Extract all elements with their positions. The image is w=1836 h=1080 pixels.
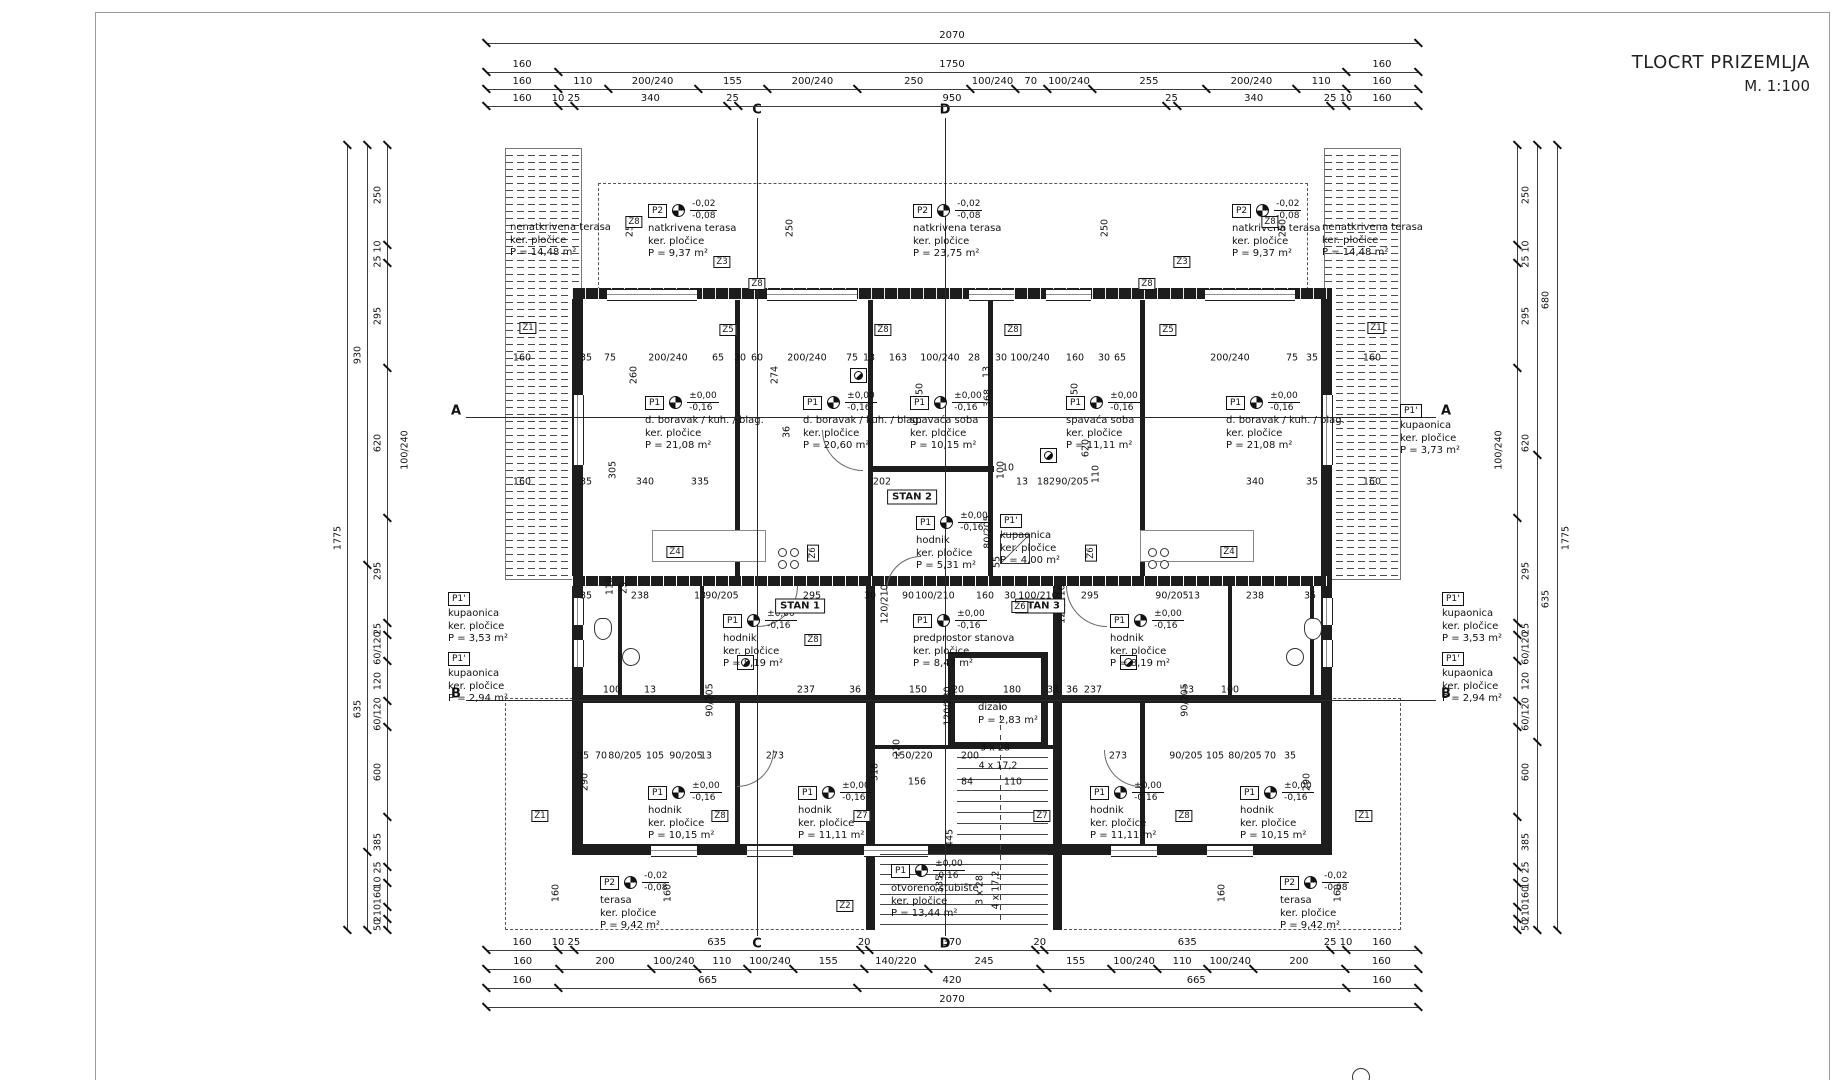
finish-tag: P1 xyxy=(1090,786,1109,800)
window-tag: Z8 xyxy=(711,810,728,822)
dimension-label: 180 xyxy=(1003,685,1021,696)
dimension-label: 65 xyxy=(1114,353,1126,364)
finish-tag: P1 xyxy=(891,864,910,878)
level-marker-icon xyxy=(1090,396,1103,409)
room-label: P1±0,00-0,16predprostor stanovaker. ploč… xyxy=(913,610,1014,671)
finish-tag: P1 xyxy=(913,614,932,628)
level-marker-icon xyxy=(1134,614,1147,627)
window xyxy=(864,845,928,857)
dimension-label: 105 xyxy=(646,751,664,762)
dimension-label: 65 xyxy=(712,353,724,364)
dimension-label: 200/240 xyxy=(792,76,834,87)
dimension-line xyxy=(486,106,1418,107)
dimension-label: 665 xyxy=(1187,975,1206,986)
dimension-label: 120/230 xyxy=(943,686,954,725)
room-text-line: ker. pločice xyxy=(510,235,611,248)
dimension-label: 13 xyxy=(700,751,712,762)
room-label: P1±0,00-0,16hodnikker. pločiceP = 11,11 … xyxy=(1090,782,1164,843)
dimension-label: 3 x 28 xyxy=(980,743,1010,754)
level-values: ±0,00-0,16 xyxy=(690,782,722,803)
room-tag-row: P1' xyxy=(448,592,508,606)
dimension-label: 250 xyxy=(373,186,384,204)
room-text-line: kupaonica xyxy=(448,608,508,621)
room-text-line: P = 20,60 m² xyxy=(803,440,922,453)
room-tag-row: P1' xyxy=(1400,404,1460,418)
dimension-label: 13 xyxy=(982,366,993,378)
dimension-label: 295 xyxy=(1521,561,1532,579)
stair-tread xyxy=(880,924,1048,925)
wall xyxy=(1228,584,1232,699)
window xyxy=(651,845,697,857)
dimension-label: 35 xyxy=(580,477,592,488)
window-tag: Z8 xyxy=(625,216,642,228)
window-tag: Z6 xyxy=(807,544,819,561)
dimension-label: 100/240 xyxy=(400,430,411,469)
finish-tag: P2 xyxy=(913,204,932,218)
dimension-label: 13 xyxy=(863,353,875,364)
dimension-label: 90 xyxy=(902,591,914,602)
room-text-line: spavaća soba xyxy=(1066,415,1140,428)
electrical-symbol xyxy=(850,368,867,383)
dimension-label: 160 xyxy=(1363,353,1381,364)
finish-tag: P2 xyxy=(1232,204,1251,218)
room-tag-row: P1' xyxy=(448,652,508,666)
room-tag-row: P1±0,00-0,16 xyxy=(645,392,764,413)
window-tag: Z8 xyxy=(1138,278,1155,290)
wall-tiled xyxy=(572,576,1332,586)
dimension-label: 90/205 xyxy=(1055,477,1088,488)
dimension-label: 182 xyxy=(1037,477,1055,488)
dimension-label: 160 xyxy=(512,59,531,70)
room-text-line: P = 14,48 m² xyxy=(1322,247,1423,260)
dimension-label: 295 xyxy=(373,306,384,324)
room-label: P2-0,02-0,08natkrivena terasaker. pločic… xyxy=(1232,200,1320,261)
dimension-label: 120 xyxy=(373,672,384,690)
window-tag: Z5 xyxy=(1159,324,1176,336)
dimension-line xyxy=(486,72,1418,73)
room-text-line: hodnik xyxy=(1110,633,1184,646)
room-label: nenatkrivena terasaker. pločiceP = 14,48… xyxy=(1322,222,1423,260)
dimension-label: 160 xyxy=(1372,59,1391,70)
dimension-label: 274 xyxy=(770,366,781,384)
dimension-label: 70 xyxy=(1264,751,1276,762)
dimension-label: 200 xyxy=(596,956,615,967)
room-tag-row: P2-0,02-0,08 xyxy=(1280,872,1349,893)
level-values: ±0,00-0,16 xyxy=(687,392,719,413)
window-tag: Z1 xyxy=(1355,810,1372,822)
room-text-line: kupaonica xyxy=(1442,608,1502,621)
dimension-line xyxy=(486,43,1418,44)
burner xyxy=(1148,560,1157,569)
dimension-label: 2070 xyxy=(939,30,964,41)
dimension-label: 90/205 xyxy=(705,591,738,602)
dimension-label: 370 xyxy=(942,937,961,948)
room-tag-row: P2-0,02-0,08 xyxy=(913,200,1001,221)
dimension-label: 160 xyxy=(1217,884,1228,902)
window xyxy=(573,598,584,625)
room-tag-row: P1±0,00-0,16 xyxy=(910,392,984,413)
dimension-label: 10 25 xyxy=(552,93,581,104)
dimension-label: 635 xyxy=(353,699,364,717)
dimension-label: 4 x 17,2 xyxy=(991,871,1002,910)
dimension-label: 110 xyxy=(1312,76,1331,87)
dimension-label: 160 xyxy=(976,591,994,602)
dimension-label: 200/240 xyxy=(632,76,674,87)
level-marker-icon xyxy=(624,876,637,889)
room-text-line: nenatkrivena terasa xyxy=(1322,222,1423,235)
stair-tread xyxy=(957,801,1048,802)
dimension-label: 160 xyxy=(1372,975,1391,986)
room-label: P2-0,02-0,08natkrivena terasaker. pločic… xyxy=(913,200,1001,261)
room-label: P1'kupaonicaker. pločiceP = 2,94 m² xyxy=(1442,652,1502,706)
dimension-label: 35 xyxy=(580,591,592,602)
level-values: ±0,00-0,16 xyxy=(840,782,872,803)
room-text-line: P = 11,11 m² xyxy=(1066,440,1140,453)
dimension-label: 13 xyxy=(1016,477,1028,488)
room-text-line: predprostor stanova xyxy=(913,633,1014,646)
dimension-label: 160 xyxy=(1372,93,1391,104)
wc xyxy=(594,618,612,640)
dimension-label: 50 xyxy=(373,918,384,930)
room-text-line: ker. pločice xyxy=(448,681,508,694)
finish-tag: P2 xyxy=(600,876,619,890)
hatch-terrace xyxy=(505,148,582,580)
dimension-label: 33 xyxy=(1047,685,1059,696)
room-text-line: P = 5,31 m² xyxy=(916,560,990,573)
room-text-line: P = 8,19 m² xyxy=(723,658,797,671)
window-tag: Z3 xyxy=(713,256,730,268)
floor-plan-sheet: TLOCRT PRIZEMLJA M. 1:100 AABBCCDD207016… xyxy=(0,0,1836,1080)
window xyxy=(1207,845,1253,857)
window-tag: Z8 xyxy=(874,324,891,336)
room-tag-row: P1±0,00-0,16 xyxy=(1226,392,1345,413)
dimension-label: 200/240 xyxy=(1231,76,1273,87)
room-text-line: P = 11,11 m² xyxy=(798,830,872,843)
dimension-label: 75 xyxy=(1286,353,1298,364)
room-tag-row: P1' xyxy=(1442,592,1502,606)
dimension-label: 100/240 xyxy=(653,956,695,967)
dimension-label: 100/240 xyxy=(749,956,791,967)
apartment-tag: STAN 1 xyxy=(775,599,825,614)
dimension-label: 100/240 xyxy=(1209,956,1251,967)
room-label: P2-0,02-0,08natkrivena terasaker. pločic… xyxy=(648,200,736,261)
room-text-line: ker. pločice xyxy=(1232,236,1320,249)
level-marker-icon xyxy=(1250,396,1263,409)
dimension-line xyxy=(347,145,348,930)
dimension-label: 35 xyxy=(1304,591,1316,602)
dimension-label: 70 xyxy=(595,751,607,762)
finish-tag: P1 xyxy=(1110,614,1129,628)
dimension-label: 635 xyxy=(707,937,726,948)
dimension-label: 160 xyxy=(551,884,562,902)
dimension-label: 2070 xyxy=(939,994,964,1005)
room-text-line: hodnik xyxy=(1240,805,1314,818)
room-label: P1'kupaonicaker. pločiceP = 3,53 m² xyxy=(1442,592,1502,646)
room-text-line: ker. pločice xyxy=(1090,818,1164,831)
room-text-line: ker. pločice xyxy=(916,548,990,561)
dimension-label: 635 xyxy=(1178,937,1197,948)
room-text-line: P = 3,73 m² xyxy=(1400,445,1460,458)
dimension-label: 100/240 xyxy=(920,353,959,364)
room-tag-row: P1±0,00-0,16 xyxy=(798,782,872,803)
room-tag-row: P2-0,02-0,08 xyxy=(600,872,669,893)
dimension-label: 30 xyxy=(734,353,746,364)
room-label: P1±0,00-0,16hodnikker. pločiceP = 8,19 m… xyxy=(723,610,797,671)
room-label: P1'kupaonicaker. pločiceP = 3,73 m² xyxy=(1400,404,1460,458)
room-text-line: d. boravak / kuh. / blag. xyxy=(645,415,764,428)
dimension-label: 318 xyxy=(870,763,881,781)
room-text-line: ker. pločice xyxy=(1442,681,1502,694)
window-tag: Z6 xyxy=(1011,601,1028,613)
room-tag-row: P1±0,00-0,16 xyxy=(913,610,1014,631)
room-text-line: P = 10,15 m² xyxy=(648,830,722,843)
wall xyxy=(572,288,583,855)
stair-tread xyxy=(957,834,1048,835)
level-marker-icon xyxy=(1304,876,1317,889)
dimension-label: 80/205 xyxy=(608,751,641,762)
window-tag: Z6 xyxy=(1085,544,1097,561)
room-text-line: P = 21,08 m² xyxy=(1226,440,1345,453)
room-text-line: kupaonica xyxy=(1400,420,1460,433)
dimension-label: 120/210 xyxy=(880,584,891,623)
finish-tag: P1' xyxy=(448,652,470,666)
dimension-label: 90/205 xyxy=(1169,751,1202,762)
dimension-label: 445 xyxy=(945,829,956,847)
window xyxy=(573,395,584,465)
dimension-label: 155 xyxy=(1066,956,1085,967)
wc xyxy=(1304,618,1322,640)
dimension-label: 160 xyxy=(1372,76,1391,87)
window xyxy=(1322,598,1333,625)
burner xyxy=(1160,560,1169,569)
dimension-label: 100/240 xyxy=(1010,353,1049,364)
dimension-label: 160 xyxy=(512,937,531,948)
finish-tag: P1 xyxy=(916,516,935,530)
dimension-label: 200/240 xyxy=(787,353,826,364)
dimension-label: 100/240 xyxy=(1494,430,1505,469)
dimension-label: 295 xyxy=(1081,591,1099,602)
dimension-label: 160 xyxy=(513,353,531,364)
room-text-line: ker. pločice xyxy=(723,646,797,659)
dimension-label: 90/205 xyxy=(669,751,702,762)
burner xyxy=(778,548,787,557)
dimension-label: 60/120 xyxy=(1521,631,1532,664)
room-label: P1±0,00-0,16spavaća sobaker. pločiceP = … xyxy=(1066,392,1140,453)
dimension-label: 28 xyxy=(968,353,980,364)
window-tag: Z8 xyxy=(1175,810,1192,822)
window xyxy=(607,289,697,301)
dimension-label: 160 xyxy=(1363,477,1381,488)
room-text-line: ker. pločice xyxy=(803,428,922,441)
room-tag-row: P1±0,00-0,16 xyxy=(891,860,979,881)
window-tag: Z8 xyxy=(1261,216,1278,228)
level-marker-icon xyxy=(940,516,953,529)
dimension-label: 163 xyxy=(889,353,907,364)
dimension-line xyxy=(486,969,1418,970)
room-text-line: spavaća soba xyxy=(910,415,984,428)
hatch-terrace xyxy=(1324,148,1401,580)
dimension-label: 150/220 xyxy=(893,751,932,762)
room-tag-row: P1' xyxy=(1000,514,1060,528)
dimension-label: 420 xyxy=(942,975,961,986)
dimension-label: 295 xyxy=(373,561,384,579)
dimension-label: 90/205 xyxy=(1180,683,1191,716)
room-text-line: P = 4,00 m² xyxy=(1000,555,1060,568)
dimension-label: 60/120 xyxy=(1521,697,1532,730)
room-label: P1±0,00-0,16d. boravak / kuh. / blag.ker… xyxy=(645,392,764,453)
window-tag: Z4 xyxy=(1220,546,1237,558)
dimension-label: 120 xyxy=(1521,672,1532,690)
room-text-line: P = 9,37 m² xyxy=(1232,248,1320,261)
dimension-label: 36 xyxy=(782,426,793,438)
dimension-line xyxy=(486,988,1418,989)
window-tag: Z1 xyxy=(531,810,548,822)
dimension-label: 620 xyxy=(373,434,384,452)
room-text-line: P = 11,11 m² xyxy=(1090,830,1164,843)
dimension-label: 84 xyxy=(961,777,973,788)
dimension-label: 60/120 xyxy=(373,697,384,730)
level-values: ±0,00-0,16 xyxy=(958,512,990,533)
room-label: P1±0,00-0,16otvoreno stubišteker. pločic… xyxy=(891,860,979,921)
dimension-label: 10 25 xyxy=(373,861,384,888)
dimension-label: 110 xyxy=(573,76,592,87)
dimension-label: 90/205 xyxy=(705,683,716,716)
dimension-label: 368 xyxy=(983,389,994,407)
window-tag: Z7 xyxy=(853,810,870,822)
dimension-label: 160 xyxy=(1521,886,1532,904)
dimension-label: 13 xyxy=(1188,591,1200,602)
level-values: ±0,00-0,16 xyxy=(1282,782,1314,803)
dimension-label: 160 xyxy=(512,975,531,986)
dimension-label: 100 xyxy=(1221,685,1239,696)
level-marker-icon xyxy=(822,786,835,799)
dimension-label: 930 xyxy=(353,346,364,364)
dimension-label: 160 xyxy=(1372,937,1391,948)
dimension-label: 13 xyxy=(644,685,656,696)
wall xyxy=(866,584,875,930)
finish-tag: P1 xyxy=(910,396,929,410)
room-text-line: ker. pločice xyxy=(1442,621,1502,634)
dimension-label: 160 xyxy=(1372,956,1391,967)
room-text-line: P = 8,47 m² xyxy=(913,658,1014,671)
dimension-label: 335 xyxy=(691,477,709,488)
dimension-label: 160 xyxy=(1066,353,1084,364)
level-marker-icon xyxy=(672,786,685,799)
dimension-label: 140/220 xyxy=(875,956,917,967)
window xyxy=(573,640,584,667)
room-label: P1±0,00-0,16d. boravak / kuh. / blag.ker… xyxy=(803,392,922,453)
finish-tag: P1 xyxy=(1240,786,1259,800)
dimension-label: 100 xyxy=(603,685,621,696)
room-text-line: terasa xyxy=(1280,895,1349,908)
finish-tag: P1 xyxy=(1066,396,1085,410)
room-text-line: P = 3,53 m² xyxy=(448,633,508,646)
dimension-label: 202 xyxy=(873,477,891,488)
dimension-label: 635 xyxy=(1541,589,1552,607)
room-label: P1'kupaonicaker. pločiceP = 4,00 m² xyxy=(1000,514,1060,568)
dimension-label: 35 xyxy=(580,353,592,364)
dimension-label: 250 xyxy=(904,76,923,87)
room-text-line: ker. pločice xyxy=(913,236,1001,249)
room-text-line: ker. pločice xyxy=(1280,908,1349,921)
dimension-label: 200 xyxy=(1289,956,1308,967)
finish-tag: P2 xyxy=(1280,876,1299,890)
dimension-line xyxy=(367,145,368,930)
dimension-label: 50 xyxy=(1521,918,1532,930)
finish-tag: P1' xyxy=(1442,592,1464,606)
dimension-label: 620 xyxy=(1521,434,1532,452)
dimension-label: 385 xyxy=(373,833,384,851)
dimension-line xyxy=(486,1007,1418,1008)
room-text-line: P = 9,42 m² xyxy=(600,920,669,933)
room-label: P1±0,00-0,16hodnikker. pločiceP = 10,15 … xyxy=(1240,782,1314,843)
burner xyxy=(778,560,787,569)
room-label: dizaloP = 2,83 m² xyxy=(978,702,1038,727)
wall xyxy=(868,466,994,472)
dimension-label: 160 xyxy=(373,886,384,904)
level-marker-icon xyxy=(934,396,947,409)
dimension-label: 90/205 xyxy=(1155,591,1188,602)
dimension-label: 273 xyxy=(1109,751,1127,762)
burner xyxy=(1148,548,1157,557)
level-values: -0,02-0,08 xyxy=(642,872,669,893)
dimension-line xyxy=(486,89,1418,90)
dimension-line xyxy=(1557,145,1558,930)
dimension-label: 237 xyxy=(797,685,815,696)
room-tag-row: P2-0,02-0,08 xyxy=(648,200,736,221)
stair-tread xyxy=(957,790,1048,791)
window-tag: Z3 xyxy=(1173,256,1190,268)
dimension-label: 160 xyxy=(512,76,531,87)
section-line-c xyxy=(757,118,758,936)
dimension-label: 20 xyxy=(952,685,964,696)
apartment-tag: STAN 2 xyxy=(887,490,937,505)
room-label: P1'kupaonicaker. pločiceP = 2,94 m² xyxy=(448,652,508,706)
window xyxy=(1322,640,1333,667)
level-marker-icon xyxy=(672,204,685,217)
dimension-label: 200/240 xyxy=(648,353,687,364)
dimension-label: 4 x 17,2 xyxy=(979,761,1018,772)
burner xyxy=(790,548,799,557)
plan-canvas: AABBCCDD20701601750160160110200/24015520… xyxy=(0,0,1836,1080)
dimension-label: 36 xyxy=(849,685,861,696)
dimension-label: 35 xyxy=(1306,477,1318,488)
window-tag: Z8 xyxy=(1004,324,1021,336)
dimension-label: 75 xyxy=(604,353,616,364)
window-tag: Z5 xyxy=(719,324,736,336)
dimension-label: 100/210 xyxy=(915,591,954,602)
dimension-label: 200/240 xyxy=(1210,353,1249,364)
dimension-label: 250 xyxy=(785,219,796,237)
level-values: -0,02-0,08 xyxy=(955,200,982,221)
room-text-line: P = 9,42 m² xyxy=(1280,920,1349,933)
level-marker-icon xyxy=(915,864,928,877)
window xyxy=(767,289,857,301)
dimension-label: 385 xyxy=(1521,833,1532,851)
dimension-label: 160 xyxy=(513,956,532,967)
room-text-line: ker. pločice xyxy=(1322,235,1423,248)
room-text-line: P = 13,44 m² xyxy=(891,908,979,921)
room-label: P1'kupaonicaker. pločiceP = 3,53 m² xyxy=(448,592,508,646)
level-values: ±0,00-0,16 xyxy=(1152,610,1184,631)
room-label: P1±0,00-0,16d. boravak / kuh. / blag.ker… xyxy=(1226,392,1345,453)
washbasin xyxy=(622,648,640,666)
room-text-line: kupaonica xyxy=(1000,530,1060,543)
dimension-label: 105 xyxy=(1206,751,1224,762)
room-text-line: ker. pločice xyxy=(910,428,984,441)
room-text-line: d. boravak / kuh. / blag. xyxy=(803,415,922,428)
dimension-label: 35 xyxy=(577,751,589,762)
